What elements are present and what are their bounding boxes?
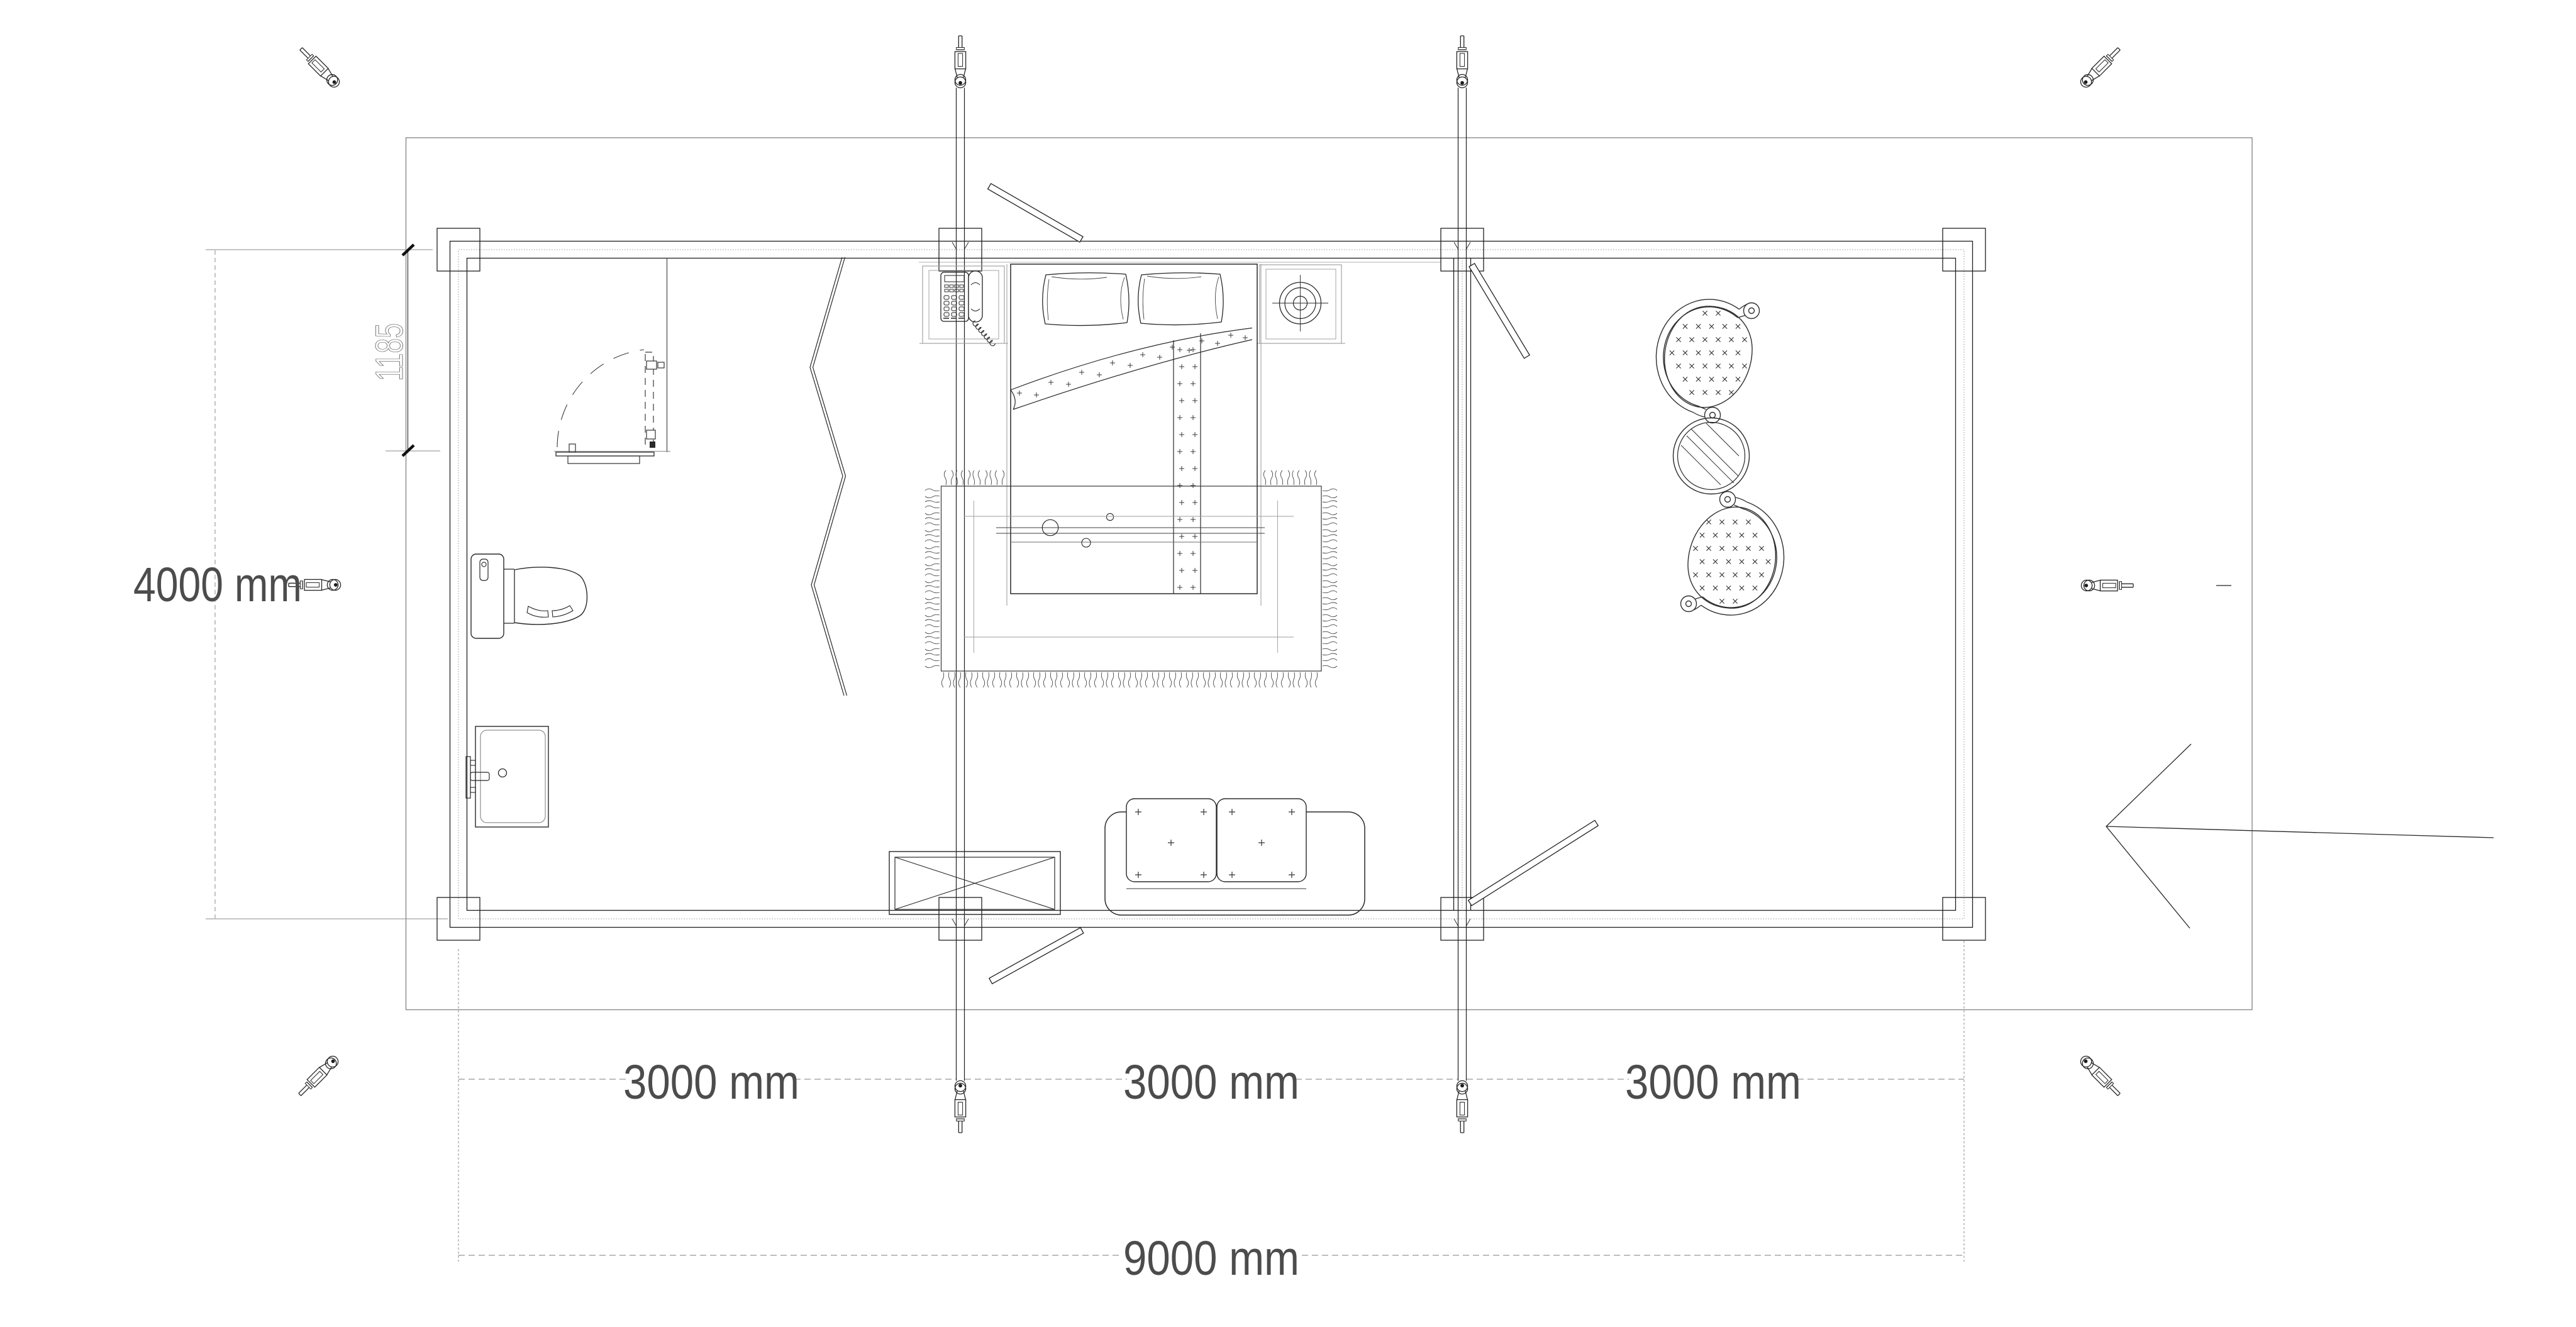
- svg-text:4000 mm: 4000 mm: [133, 558, 302, 612]
- svg-text:1185: 1185: [368, 323, 411, 381]
- svg-text:3000 mm: 3000 mm: [1625, 1055, 1801, 1109]
- svg-text:9000 mm: 9000 mm: [1123, 1231, 1299, 1285]
- svg-text:3000 mm: 3000 mm: [623, 1055, 799, 1109]
- svg-text:3000 mm: 3000 mm: [1123, 1055, 1299, 1109]
